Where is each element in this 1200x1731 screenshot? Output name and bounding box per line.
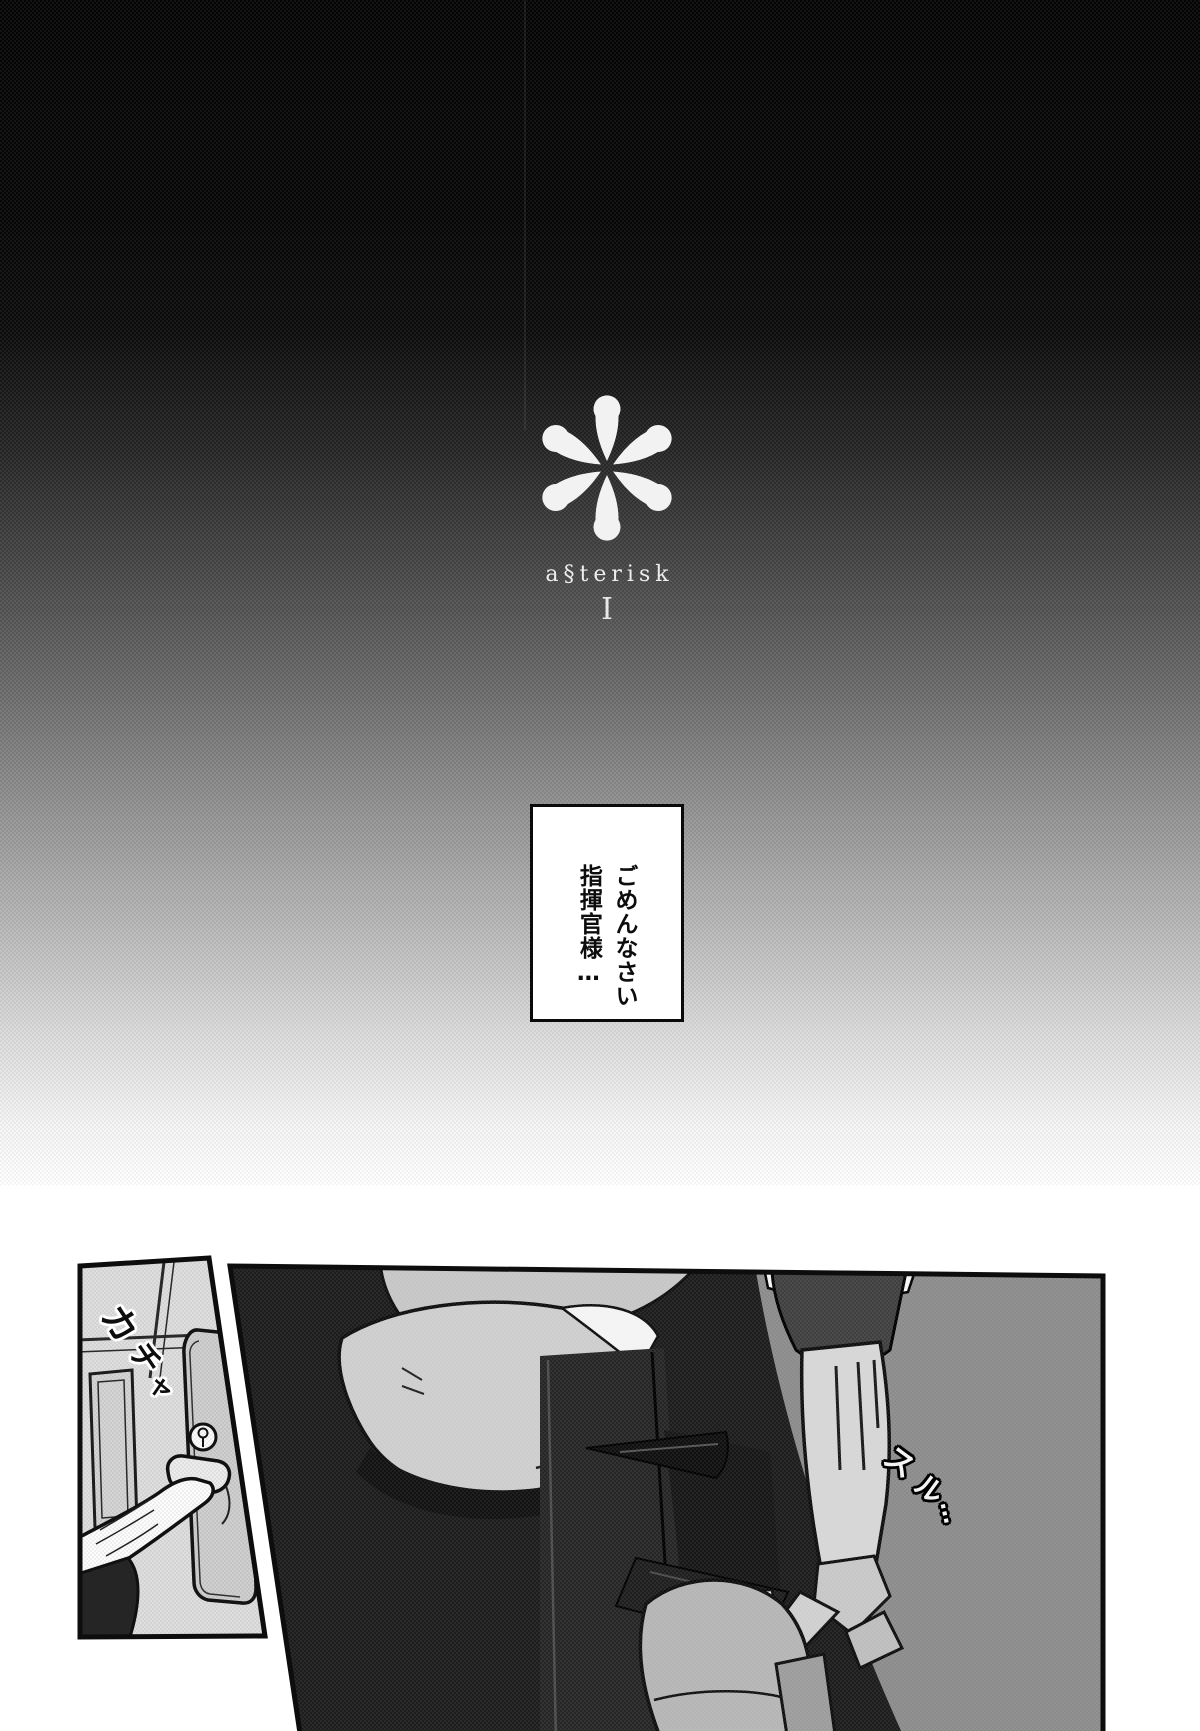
speech-bubble: ごめんなさい 指揮官様… — [530, 804, 684, 1022]
logo-numeral: I — [457, 592, 757, 627]
logo-title: a§terisk — [457, 562, 757, 587]
manga-page: a§terisk I ごめんなさい 指揮官様… — [0, 0, 1200, 1731]
speech-bubble-text: ごめんなさい 指揮官様… — [570, 864, 641, 1008]
speech-line-2: 指揮官様… — [570, 864, 606, 1008]
asterisk-flower-icon — [532, 386, 682, 550]
sfx-slide: ス ル … — [884, 1436, 984, 1566]
speech-line-1: ごめんなさい — [605, 864, 641, 1008]
sfx-slide-char-3: … — [934, 1499, 963, 1526]
scan-fold-line — [524, 0, 526, 430]
sfx-door-click: カ チ ャ — [92, 1292, 202, 1412]
